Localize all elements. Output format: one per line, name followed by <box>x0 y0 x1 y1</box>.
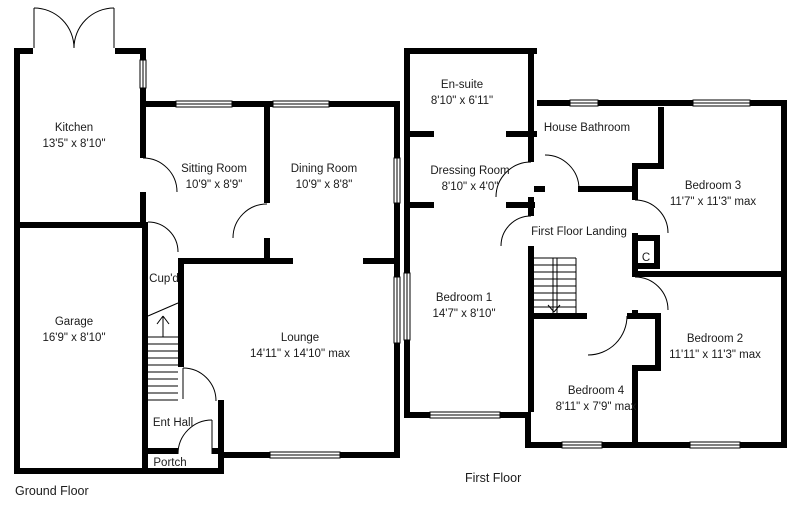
door-arc <box>74 8 114 48</box>
room-dims-bedroom4: 8'11" x 7'9" max <box>556 401 637 413</box>
staircase-first <box>534 258 576 313</box>
door-arc <box>143 158 177 192</box>
ground-floor-plan: Kitchen 13'5" x 8'10" Sitting Room 10'9"… <box>14 8 400 498</box>
door-arc <box>635 277 668 310</box>
door-arc <box>233 204 267 238</box>
door-arc <box>635 200 668 233</box>
room-label-ensuite: En-suite <box>441 79 483 91</box>
floorplan-drawing: Kitchen 13'5" x 8'10" Sitting Room 10'9"… <box>0 0 800 506</box>
room-label-sitting: Sitting Room <box>181 163 247 175</box>
room-label-porch: Portch <box>153 457 186 469</box>
room-dims-bedroom2: 11'11" x 11'3" max <box>669 349 761 361</box>
first-floor-title: First Floor <box>465 471 521 485</box>
door-arc <box>501 216 531 246</box>
room-label-landing: First Floor Landing <box>531 226 627 238</box>
door-arc <box>34 8 74 48</box>
room-dims-dining: 10'9" x 8'8" <box>296 179 353 191</box>
room-dims-kitchen: 13'5" x 8'10" <box>42 138 105 150</box>
room-dims-lounge: 14'11" x 14'10" max <box>250 348 350 360</box>
room-label-dressing: Dressing Room <box>430 165 509 177</box>
ground-doors <box>34 8 267 454</box>
room-label-bathroom: House Bathroom <box>544 122 630 134</box>
ground-floor-title: Ground Floor <box>15 484 89 498</box>
room-label-cupboard-c: C <box>642 252 650 264</box>
room-label-lounge: Lounge <box>281 332 319 344</box>
room-label-ent-hall: Ent Hall <box>153 417 193 429</box>
ground-room-labels: Kitchen 13'5" x 8'10" Sitting Room 10'9"… <box>42 122 357 469</box>
room-label-bedroom4: Bedroom 4 <box>568 385 625 397</box>
room-dims-bedroom1: 14'7" x 8'10" <box>432 308 495 320</box>
door-arc <box>545 155 579 189</box>
room-label-kitchen: Kitchen <box>55 122 93 134</box>
room-dims-dressing: 8'10" x 4'0" <box>442 181 499 193</box>
first-floor-plan: En-suite 8'10" x 6'11" Dressing Room 8'1… <box>404 48 787 485</box>
room-dims-garage: 16'9" x 8'10" <box>42 332 105 344</box>
door-arc <box>588 316 627 355</box>
door-arc <box>148 222 178 252</box>
room-label-bedroom2: Bedroom 2 <box>687 333 743 345</box>
staircase-ground <box>148 303 178 400</box>
door-arc <box>183 368 216 401</box>
room-dims-bedroom3: 11'7" x 11'3" max <box>670 196 757 208</box>
first-room-labels: En-suite 8'10" x 6'11" Dressing Room 8'1… <box>430 79 761 413</box>
room-label-dining: Dining Room <box>291 163 357 175</box>
room-dims-sitting: 10'9" x 8'9" <box>186 179 243 191</box>
room-label-bedroom3: Bedroom 3 <box>685 180 741 192</box>
room-label-cupboard: Cup'd <box>149 273 179 285</box>
room-label-garage: Garage <box>55 316 93 328</box>
room-label-bedroom1: Bedroom 1 <box>436 292 492 304</box>
floorplan-page: Kitchen 13'5" x 8'10" Sitting Room 10'9"… <box>0 0 800 506</box>
room-dims-ensuite: 8'10" x 6'11" <box>431 95 493 107</box>
ground-walls <box>14 48 400 474</box>
